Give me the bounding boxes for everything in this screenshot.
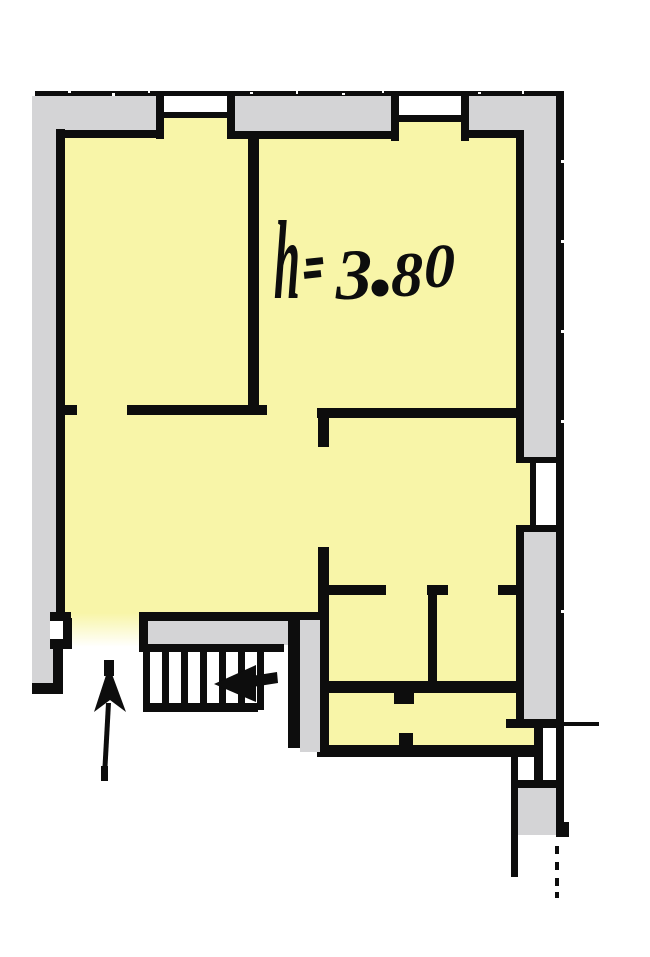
svg-text:8: 8: [391, 239, 423, 310]
svg-text:0: 0: [424, 233, 455, 301]
svg-text:3: 3: [335, 235, 372, 315]
svg-text:h: h: [274, 198, 300, 323]
